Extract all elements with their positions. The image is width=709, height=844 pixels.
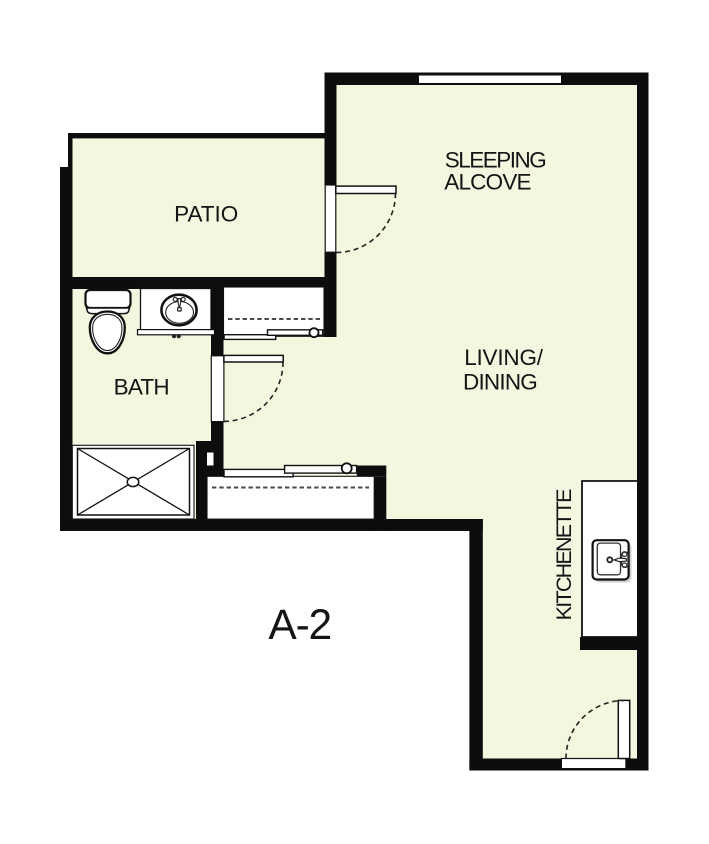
svg-text:BATH: BATH (114, 375, 169, 400)
svg-text:A-2: A-2 (268, 602, 331, 649)
svg-text:ALCOVE: ALCOVE (444, 170, 531, 195)
svg-text:KITCHENETTE: KITCHENETTE (552, 489, 576, 620)
svg-text:LIVING/: LIVING/ (464, 345, 544, 370)
svg-text:PATIO: PATIO (174, 202, 238, 227)
svg-text:DINING: DINING (463, 370, 537, 395)
